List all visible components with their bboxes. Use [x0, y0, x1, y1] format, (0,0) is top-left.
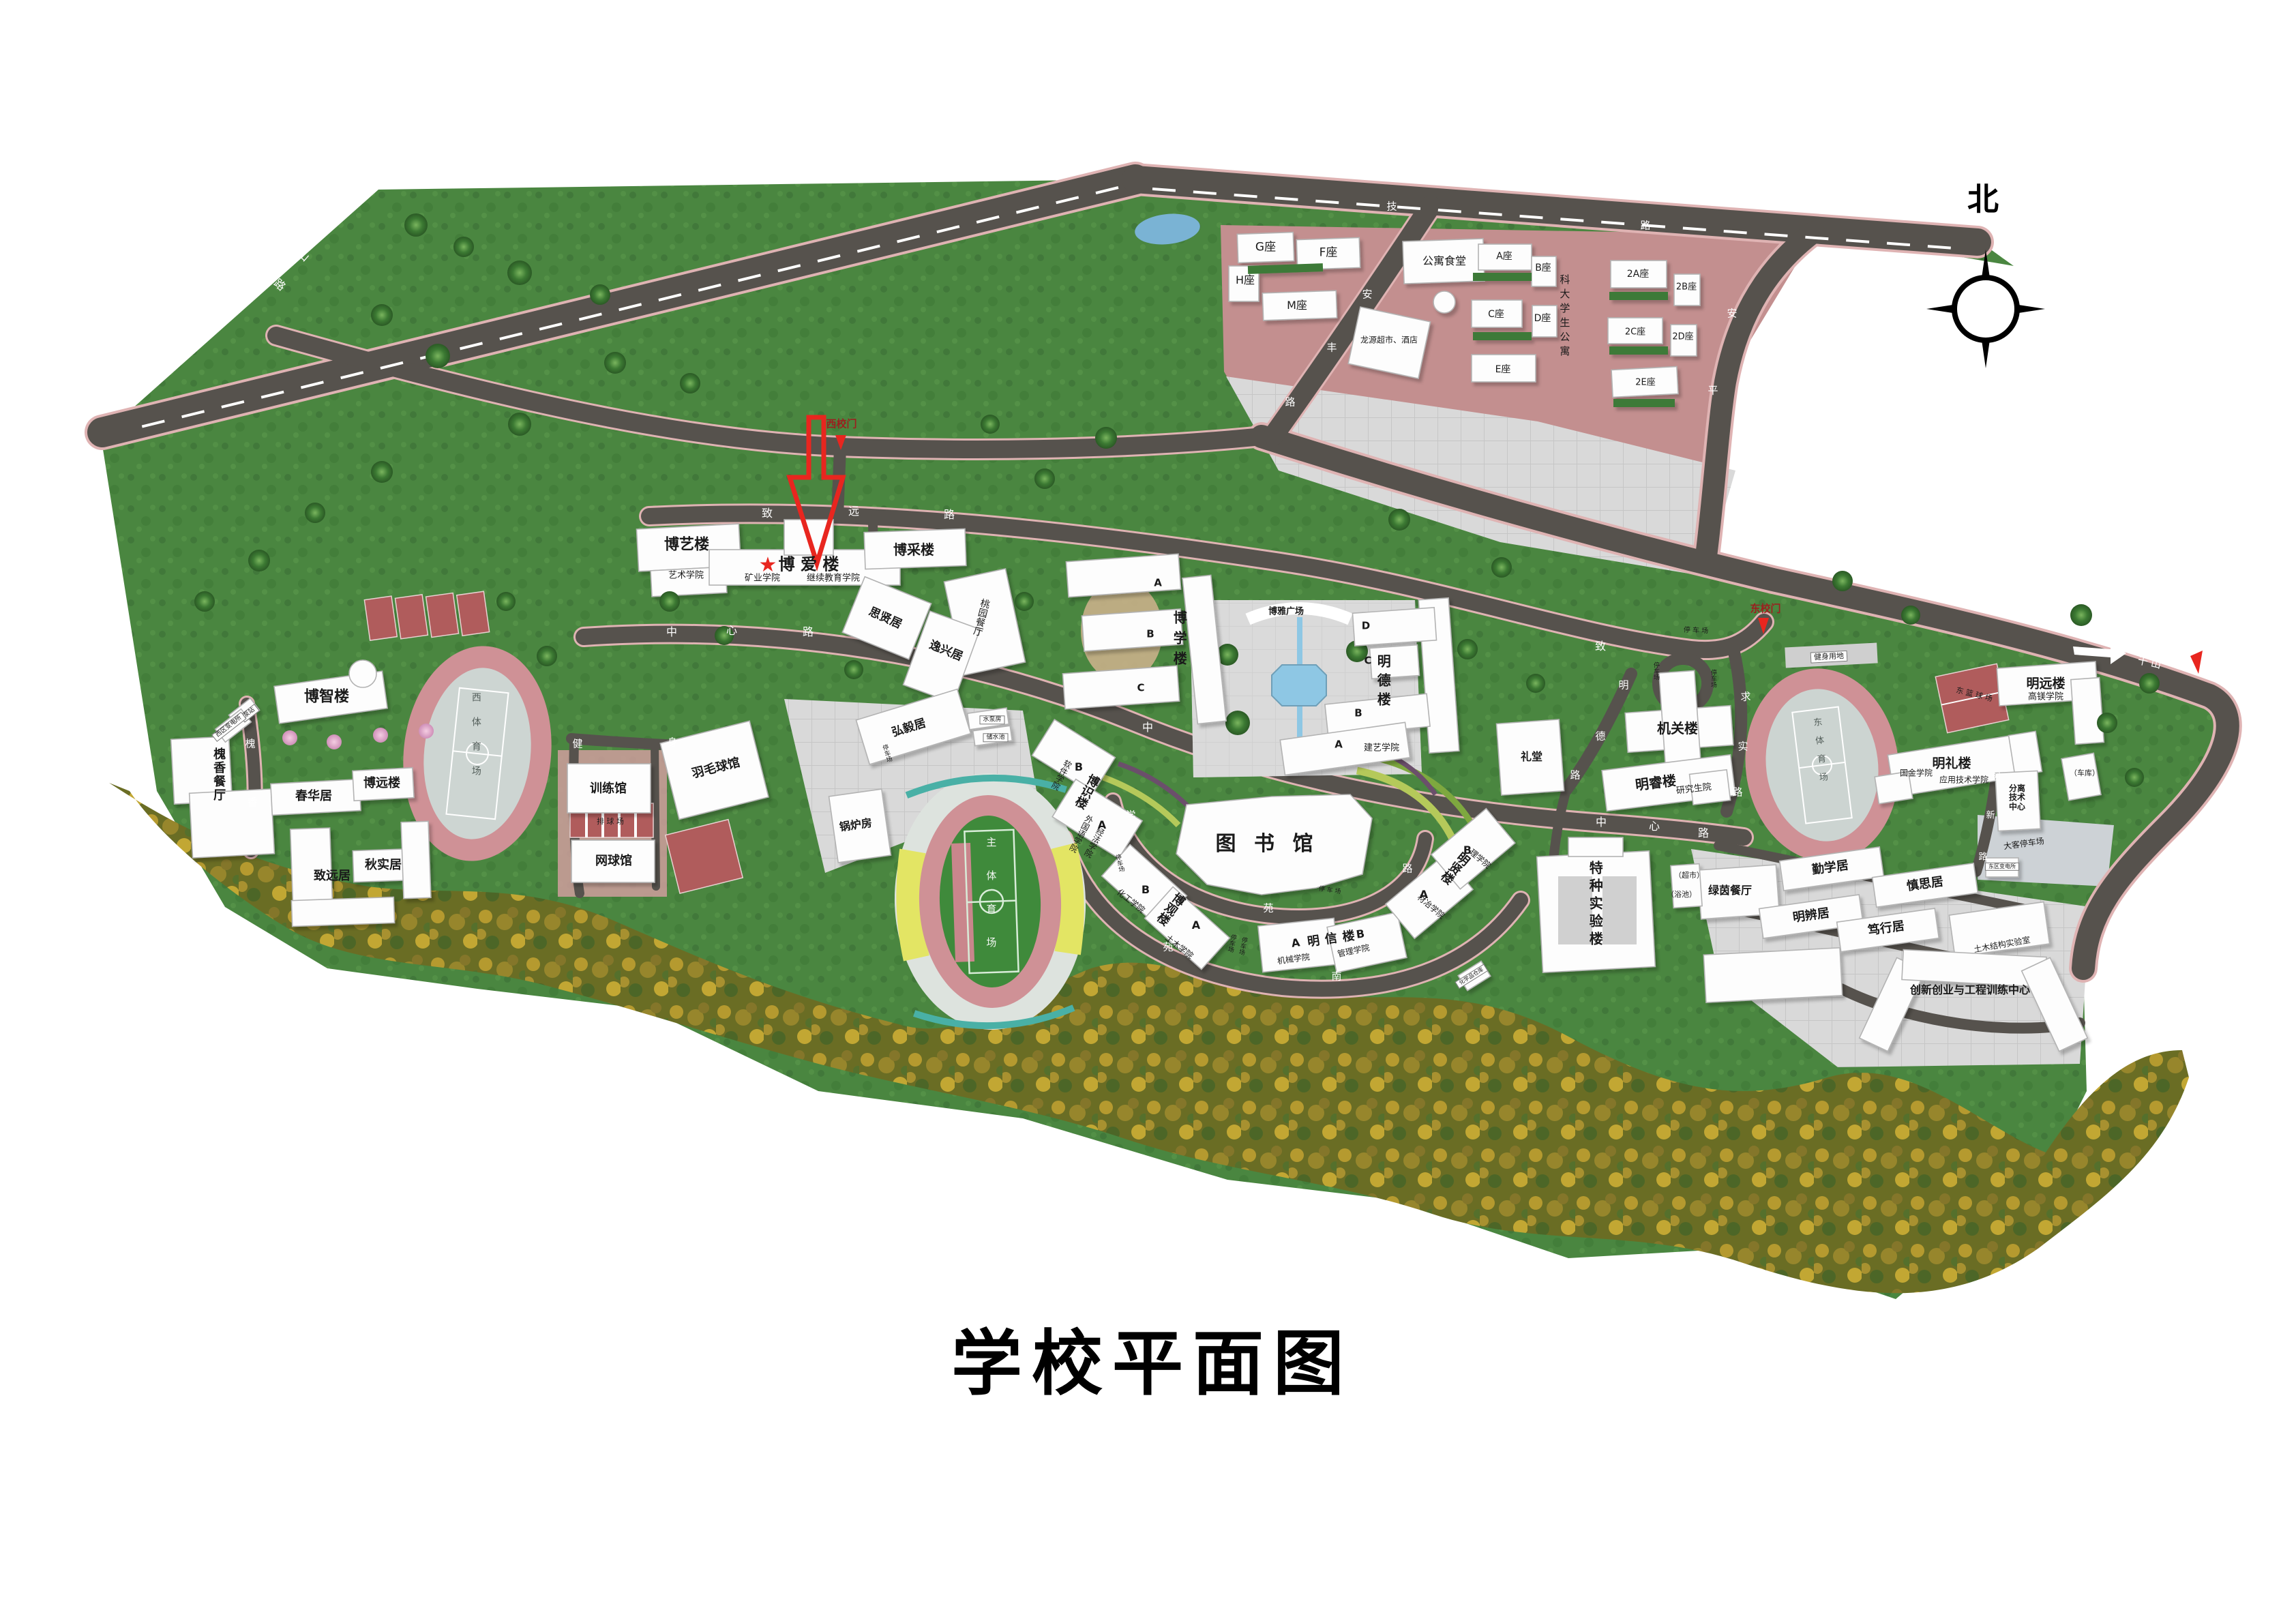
fountain	[1272, 665, 1326, 706]
compass-icon	[1926, 250, 2045, 368]
north-label: 北	[1967, 175, 1999, 220]
campus-map: G座F座H座M座公寓食堂A座B座C座D座E座龙源超市、酒店科大学生公寓2A座2B…	[0, 0, 2296, 1623]
page-title: 学校平面图	[951, 1306, 1354, 1409]
side-gate-marker	[2190, 651, 2203, 674]
